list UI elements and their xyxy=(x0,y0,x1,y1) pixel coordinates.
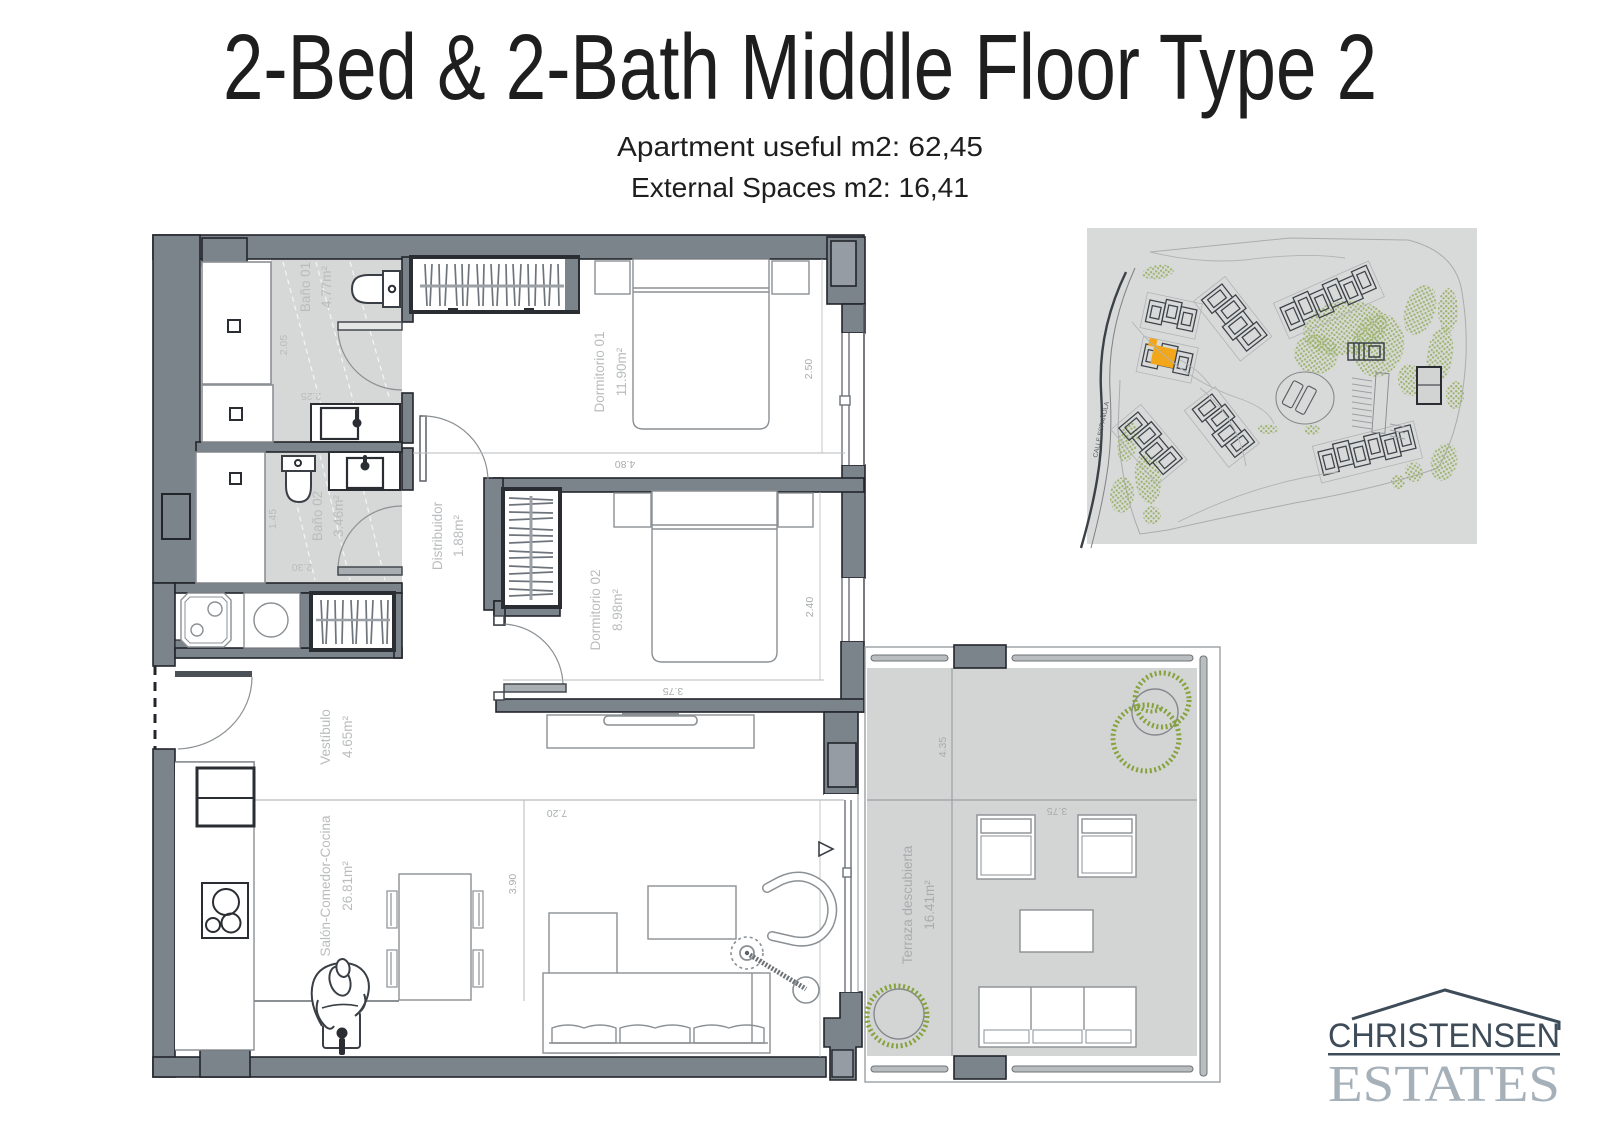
svg-text:External Spaces m2: 16,41: External Spaces m2: 16,41 xyxy=(631,172,969,203)
svg-text:Dormitorio 01: Dormitorio 01 xyxy=(592,331,607,412)
svg-text:8.98m²: 8.98m² xyxy=(610,588,625,631)
svg-text:CHRISTENSEN: CHRISTENSEN xyxy=(1328,1017,1560,1055)
svg-text:Baño 02: Baño 02 xyxy=(310,491,325,541)
svg-text:Distribuidor: Distribuidor xyxy=(430,501,445,570)
svg-text:3.46m²: 3.46m² xyxy=(331,494,346,537)
svg-text:4.65m²: 4.65m² xyxy=(340,715,355,758)
svg-text:3.75: 3.75 xyxy=(663,685,684,697)
svg-text:2.40: 2.40 xyxy=(804,597,816,618)
svg-text:1.45: 1.45 xyxy=(267,509,279,530)
svg-text:3.90: 3.90 xyxy=(507,874,519,895)
svg-text:Terraza descubierta: Terraza descubierta xyxy=(900,845,915,964)
svg-text:26.81m²: 26.81m² xyxy=(340,861,355,911)
svg-text:1.88m²: 1.88m² xyxy=(451,514,466,557)
svg-text:11.90m²: 11.90m² xyxy=(614,347,629,396)
svg-text:7.20: 7.20 xyxy=(547,807,568,819)
svg-text:4.77m²: 4.77m² xyxy=(319,265,334,308)
svg-text:2.50: 2.50 xyxy=(803,359,815,380)
svg-text:Vestíbulo: Vestíbulo xyxy=(318,709,333,765)
svg-text:16.41m²: 16.41m² xyxy=(922,880,937,930)
svg-text:Baño 01: Baño 01 xyxy=(298,262,313,312)
svg-text:4.35: 4.35 xyxy=(937,737,949,758)
svg-text:2.05: 2.05 xyxy=(278,335,290,356)
svg-text:2.25: 2.25 xyxy=(301,390,322,402)
svg-text:ESTATES: ESTATES xyxy=(1328,1056,1560,1113)
svg-text:2.30: 2.30 xyxy=(292,561,313,573)
svg-text:4.80: 4.80 xyxy=(615,458,636,470)
svg-text:Dormitorio 02: Dormitorio 02 xyxy=(588,569,603,650)
svg-text:3.75: 3.75 xyxy=(1047,805,1068,817)
svg-text:Apartment useful m2: 62,45: Apartment useful m2: 62,45 xyxy=(617,131,983,162)
svg-text:2-Bed & 2-Bath Middle Floor Ty: 2-Bed & 2-Bath Middle Floor Type 2 xyxy=(223,15,1377,119)
svg-text:Salón-Comedor-Cocina: Salón-Comedor-Cocina xyxy=(318,815,333,957)
